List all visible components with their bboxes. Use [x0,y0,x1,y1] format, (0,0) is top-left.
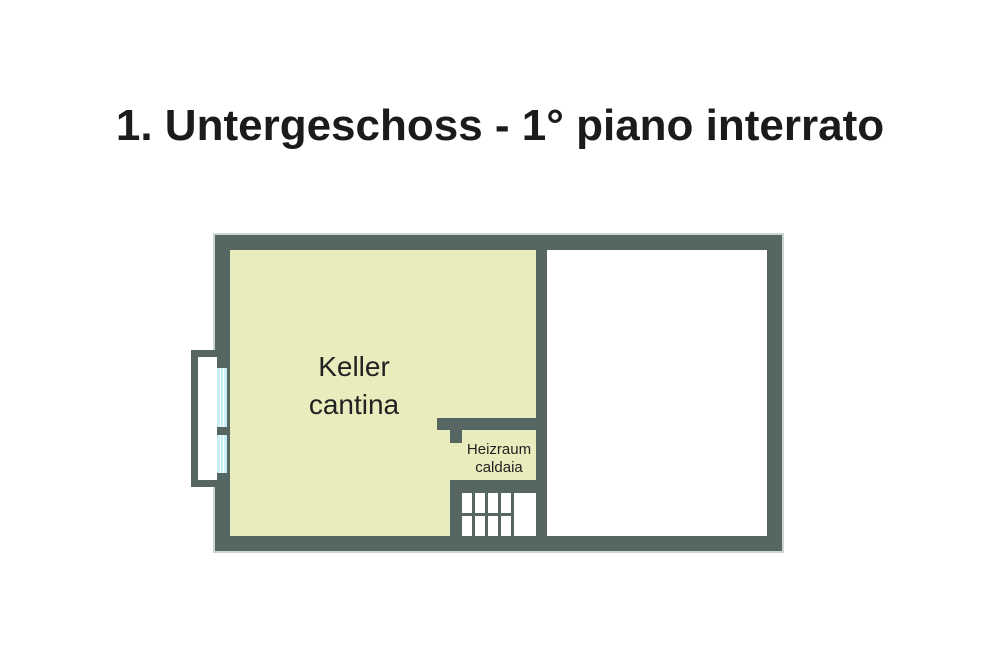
window-pane-lower [217,435,227,473]
stair-tread [488,493,498,513]
stair-tread [475,493,485,513]
heizraum-label-it: caldaia [475,459,523,477]
heizraum-label-de: Heizraum [467,441,531,459]
stair-tread [462,493,472,513]
page-title: 1. Untergeschoss - 1° piano interrato [0,101,1000,151]
floor-plan: Keller cantina Heizraum caldaia [215,235,782,551]
stairs-left-wall [450,493,462,536]
stair-landing [514,493,536,536]
heizraum-top-wall [437,418,537,430]
unlabeled-room [547,250,767,536]
keller-label-it: cantina [254,386,454,424]
heizraum-bottom-wall [450,480,537,493]
keller-label-de: Keller [254,348,454,386]
stair-tread [475,516,485,536]
keller-room-label: Keller cantina [254,348,454,424]
stair-tread [462,516,472,536]
stair-tread [501,493,511,513]
heizraum-door-stub-wall [450,430,462,443]
floor-plan-page: 1. Untergeschoss - 1° piano interrato Ke… [0,0,1000,672]
heizraum-room: Heizraum caldaia [462,430,536,480]
stair-treads [462,493,511,536]
stair-tread [501,516,511,536]
window-pane-upper [217,368,227,427]
staircase [462,493,536,536]
window-well [191,350,217,487]
divider-wall [536,250,547,536]
stair-tread [488,516,498,536]
